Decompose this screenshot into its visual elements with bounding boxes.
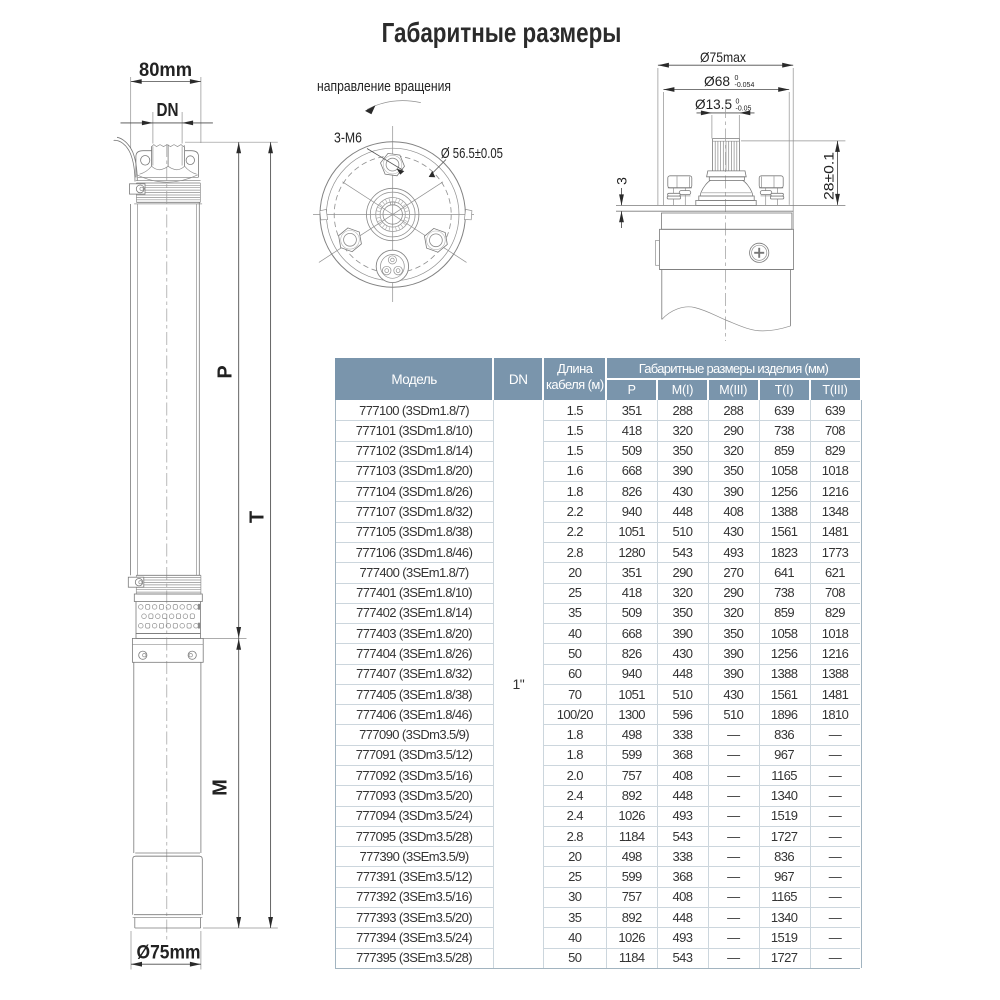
svg-text:направление вращения: направление вращения — [317, 78, 451, 95]
svg-text:3-M6: 3-M6 — [334, 130, 362, 147]
svg-text:28±0.1: 28±0.1 — [821, 152, 837, 200]
svg-text:0: 0 — [735, 75, 739, 82]
svg-text:Ø75max: Ø75max — [700, 49, 746, 65]
svg-text:P: P — [215, 365, 237, 378]
svg-text:Ø 56.5±0.05: Ø 56.5±0.05 — [441, 145, 503, 162]
svg-text:DN: DN — [157, 100, 179, 120]
svg-text:0: 0 — [736, 99, 740, 106]
svg-text:3: 3 — [614, 177, 630, 185]
svg-text:Ø75mm: Ø75mm — [137, 943, 201, 964]
svg-text:Ø13.5: Ø13.5 — [695, 96, 732, 112]
svg-text:M: M — [210, 779, 232, 796]
svg-text:80mm: 80mm — [139, 60, 192, 81]
svg-text:-0.054: -0.054 — [735, 82, 755, 89]
svg-text:Ø68: Ø68 — [704, 73, 730, 89]
svg-text:T: T — [247, 511, 269, 523]
